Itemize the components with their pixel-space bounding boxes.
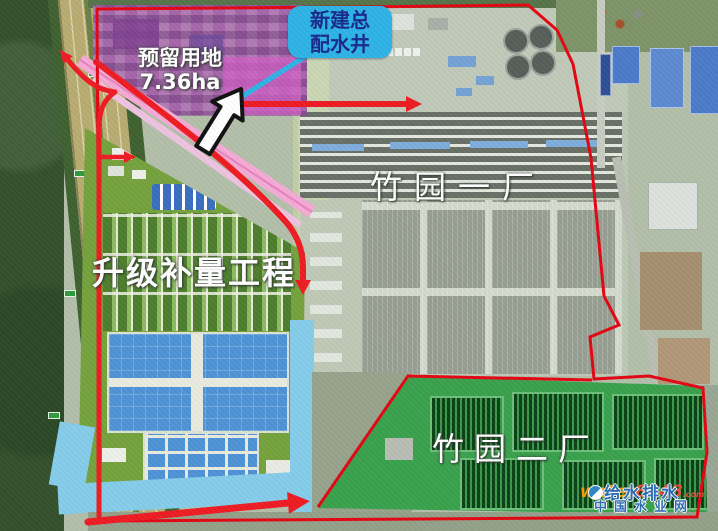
watermark-cn-line2: 中国水业网 [594, 496, 694, 515]
label-plant2: 竹园二厂 [432, 424, 600, 470]
label-reserved-land: 预留用地 7.36ha [118, 46, 242, 94]
label-upgrade-project: 升级补量工程 [92, 248, 296, 294]
flow-arrow-pump-station [99, 142, 124, 157]
watermark: water8848.com 给水排水 中国水业网 [578, 479, 718, 515]
reserved-land-area: 7.36ha [118, 70, 242, 94]
callout-box-new-distribution-well: 新建总 配水井 [288, 6, 392, 58]
label-plant1: 竹园一厂 [370, 162, 546, 208]
callout-line1: 新建总 [288, 8, 392, 32]
satellite-annotation-map: 新建总 配水井 预留用地 7.36ha 竹园一厂 升级补量工程 竹园二厂 wat… [0, 0, 718, 531]
callout-line2: 配水井 [288, 32, 392, 56]
reserved-land-title: 预留用地 [118, 46, 242, 70]
